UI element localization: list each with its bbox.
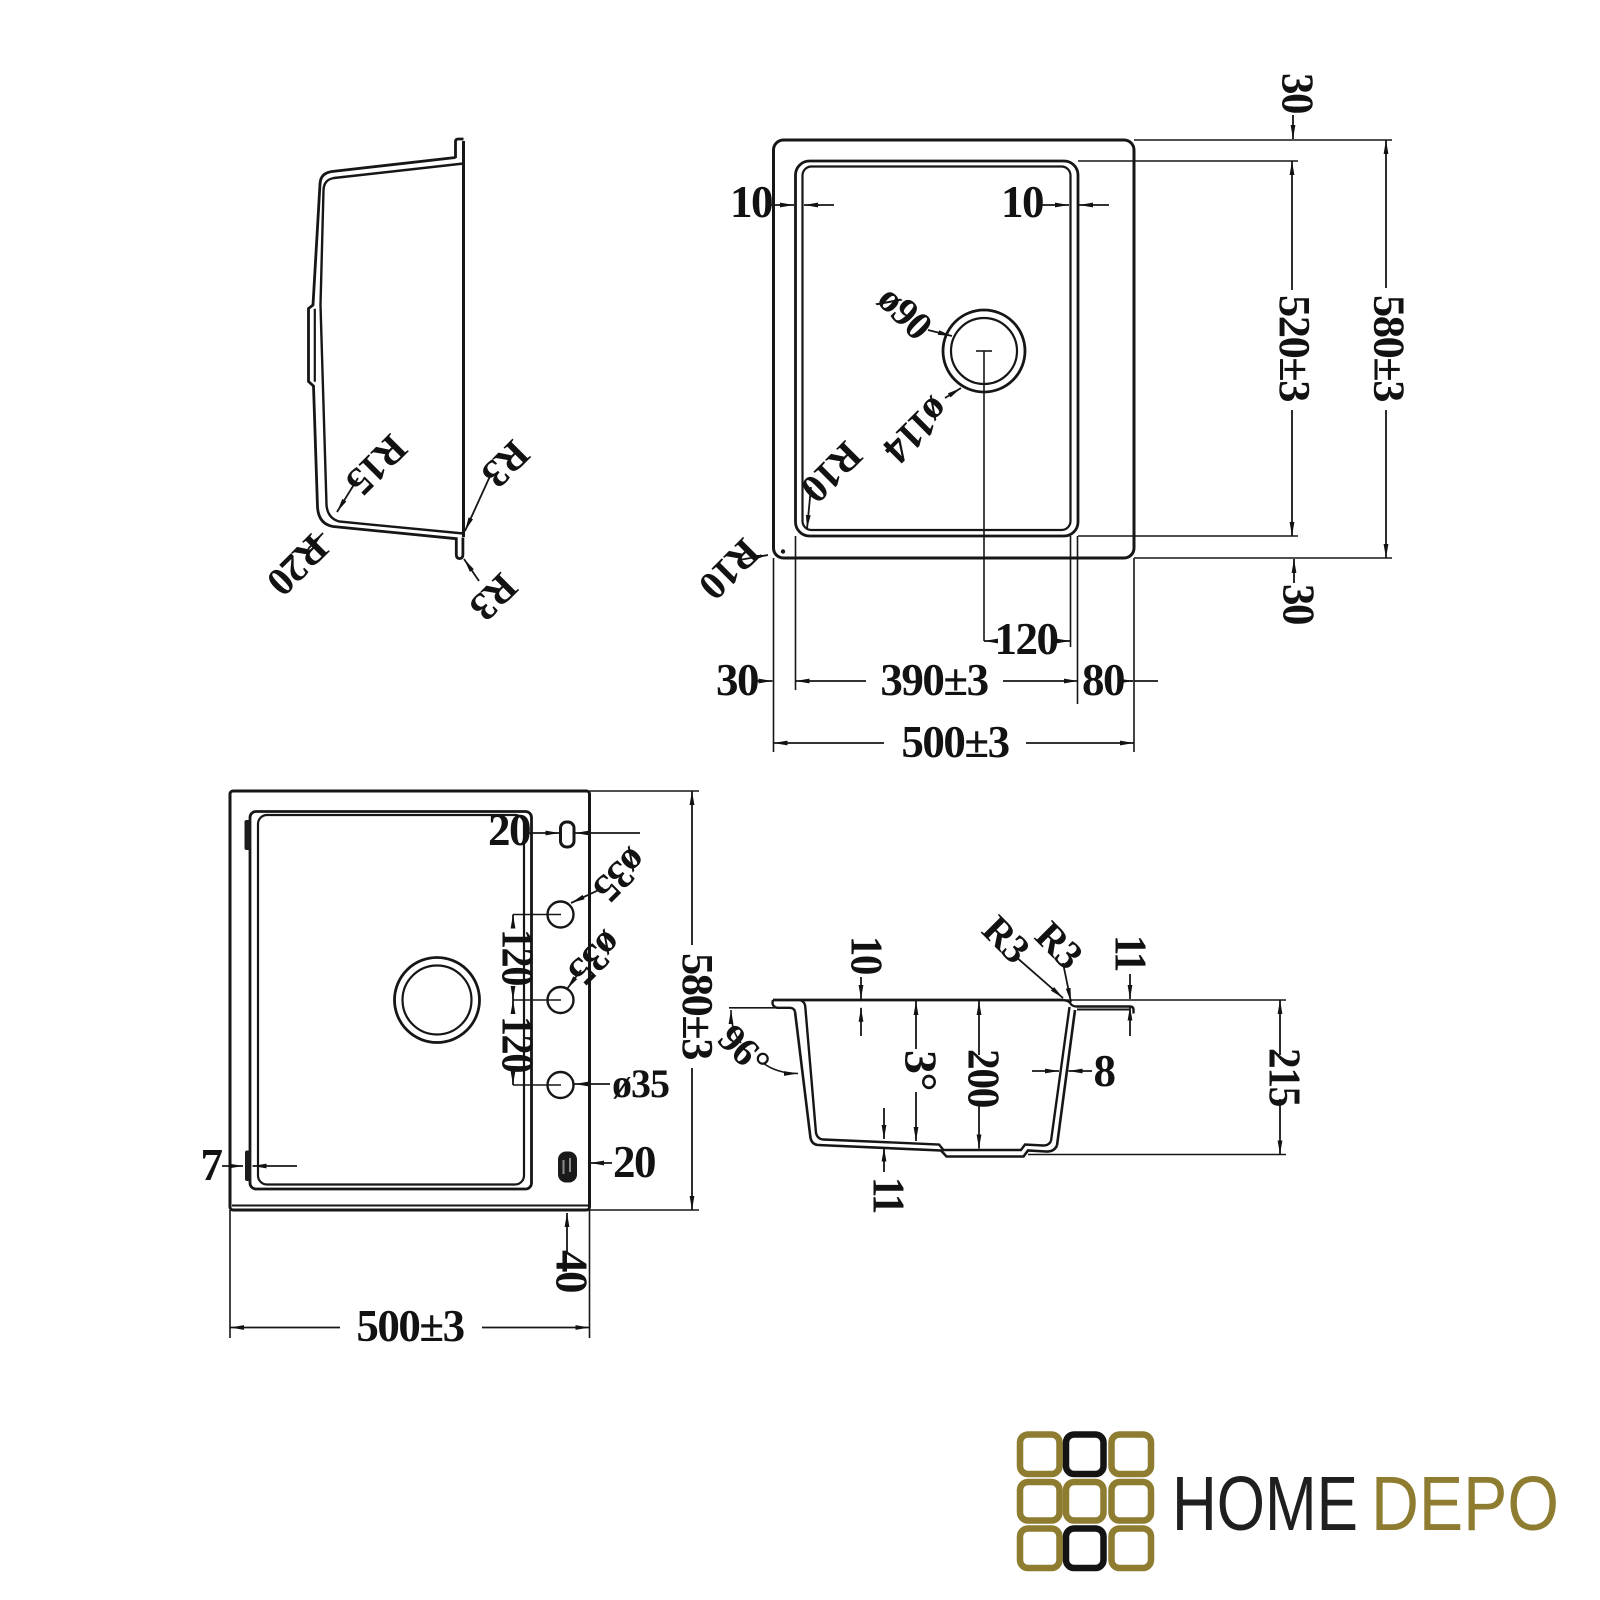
svg-text:10: 10: [842, 936, 892, 974]
svg-text:ø35: ø35: [612, 1061, 669, 1106]
svg-text:R3: R3: [462, 565, 527, 630]
svg-text:ø90: ø90: [869, 276, 941, 348]
svg-text:30: 30: [1273, 73, 1323, 113]
svg-text:11: 11: [864, 1177, 914, 1213]
svg-text:200: 200: [959, 1049, 1009, 1107]
svg-text:80: 80: [1082, 655, 1124, 705]
svg-text:500±3: 500±3: [356, 1301, 463, 1351]
svg-text:8: 8: [1094, 1046, 1115, 1096]
svg-text:R3: R3: [974, 906, 1039, 971]
svg-text:ø114: ø114: [874, 388, 959, 473]
svg-text:R20: R20: [259, 526, 337, 604]
svg-text:10: 10: [730, 177, 772, 227]
svg-text:HOME: HOME: [1172, 1461, 1358, 1547]
svg-text:30: 30: [716, 655, 758, 705]
svg-text:R10: R10: [793, 433, 871, 511]
svg-text:R3: R3: [474, 432, 539, 497]
svg-text:215: 215: [1260, 1048, 1310, 1106]
svg-text:ø35: ø35: [585, 839, 657, 911]
svg-text:580±3: 580±3: [1364, 295, 1413, 401]
svg-text:520±3: 520±3: [1270, 295, 1319, 401]
svg-text:20: 20: [613, 1137, 655, 1187]
svg-text:R10: R10: [691, 530, 769, 608]
svg-text:11: 11: [1106, 935, 1156, 971]
svg-text:390±3: 390±3: [880, 655, 987, 705]
svg-text:20: 20: [488, 805, 530, 855]
svg-text:3°: 3°: [896, 1050, 946, 1090]
svg-text:120: 120: [995, 614, 1058, 664]
svg-text:120: 120: [493, 929, 543, 985]
svg-text:10: 10: [1001, 177, 1043, 227]
svg-text:7: 7: [201, 1140, 223, 1190]
svg-text:R3: R3: [1027, 912, 1092, 977]
svg-text:500±3: 500±3: [901, 717, 1008, 767]
svg-text:40: 40: [547, 1250, 597, 1292]
svg-text:120: 120: [493, 1016, 543, 1072]
svg-text:30: 30: [1274, 584, 1324, 624]
svg-text:DEPO: DEPO: [1371, 1461, 1559, 1547]
